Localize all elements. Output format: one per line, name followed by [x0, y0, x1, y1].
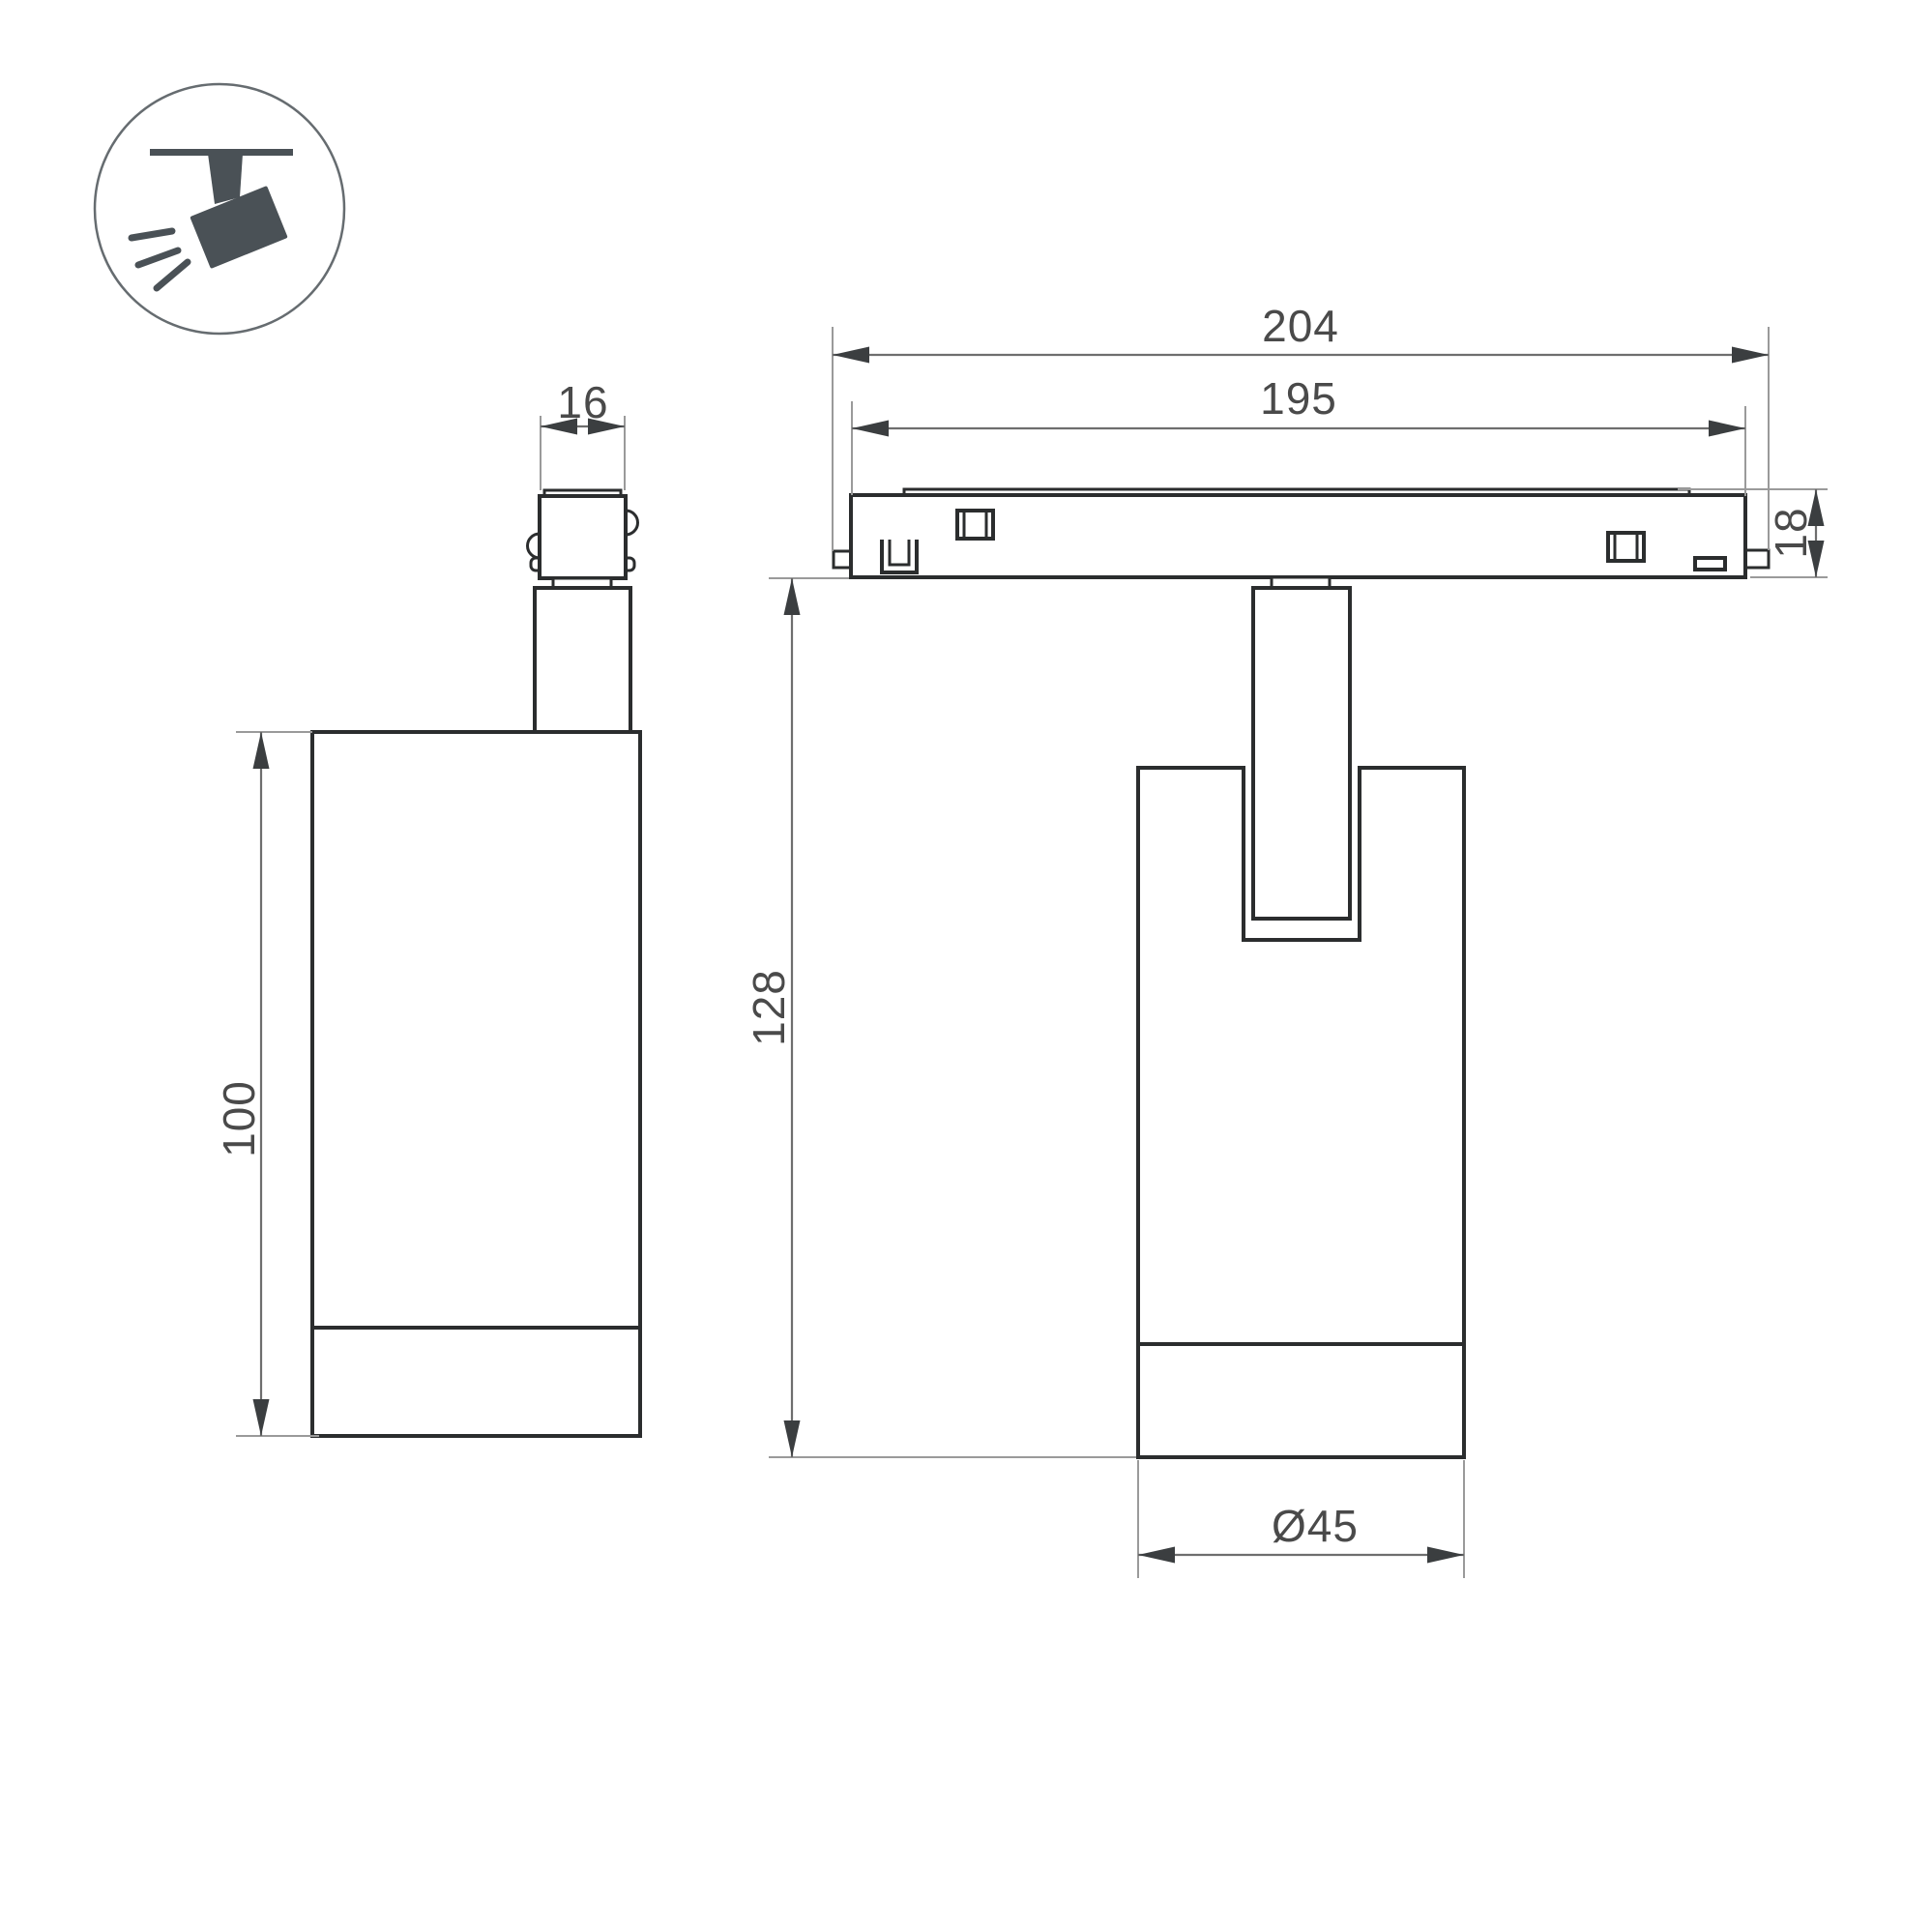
dim-track-inner: 195: [852, 373, 1745, 496]
track-slot: [1695, 558, 1725, 570]
dim-connector-width: 16: [541, 377, 625, 490]
dim-label-d45: Ø45: [1272, 1501, 1359, 1551]
dim-arrow-top: [253, 732, 270, 769]
dim-body-height: 100: [214, 732, 319, 1436]
spotlight-stem-front: [1253, 588, 1350, 919]
track-connector: [540, 496, 626, 578]
dim-arrow-right: [1732, 347, 1769, 364]
dim-arrow-top: [784, 578, 801, 615]
dim-arrow-left: [852, 421, 889, 437]
spotlight-stem: [535, 588, 630, 733]
technical-drawing: 16 204 195 18 100: [0, 0, 1932, 1932]
dim-arrow-right: [1709, 421, 1745, 437]
spotlight-icon: [95, 84, 344, 334]
side-view-spotlight: [312, 490, 640, 1436]
dim-body-diameter: Ø45: [1138, 1460, 1464, 1578]
dim-arrow-bottom: [253, 1399, 270, 1436]
track-clip-detail: [882, 540, 917, 572]
dim-label-16: 16: [557, 377, 608, 427]
dim-overall-height: 128: [744, 578, 1136, 1457]
dim-extension-lines: [769, 578, 1136, 1457]
dim-arrow-bottom: [784, 1420, 801, 1457]
track-end-tab-left: [834, 551, 851, 568]
dim-label-18: 18: [1766, 507, 1816, 558]
dim-label-204: 204: [1262, 301, 1339, 351]
drawing-canvas: 16 204 195 18 100: [0, 0, 1932, 1932]
front-view-spotlight: [834, 489, 1769, 1457]
dim-arrow-right: [1427, 1547, 1464, 1564]
dim-label-195: 195: [1260, 373, 1337, 424]
dim-label-100: 100: [214, 1080, 264, 1157]
dim-label-128: 128: [744, 969, 794, 1046]
dim-arrow-left: [833, 347, 869, 364]
spotlight-body: [312, 732, 640, 1436]
dim-arrow-left: [1138, 1547, 1175, 1564]
